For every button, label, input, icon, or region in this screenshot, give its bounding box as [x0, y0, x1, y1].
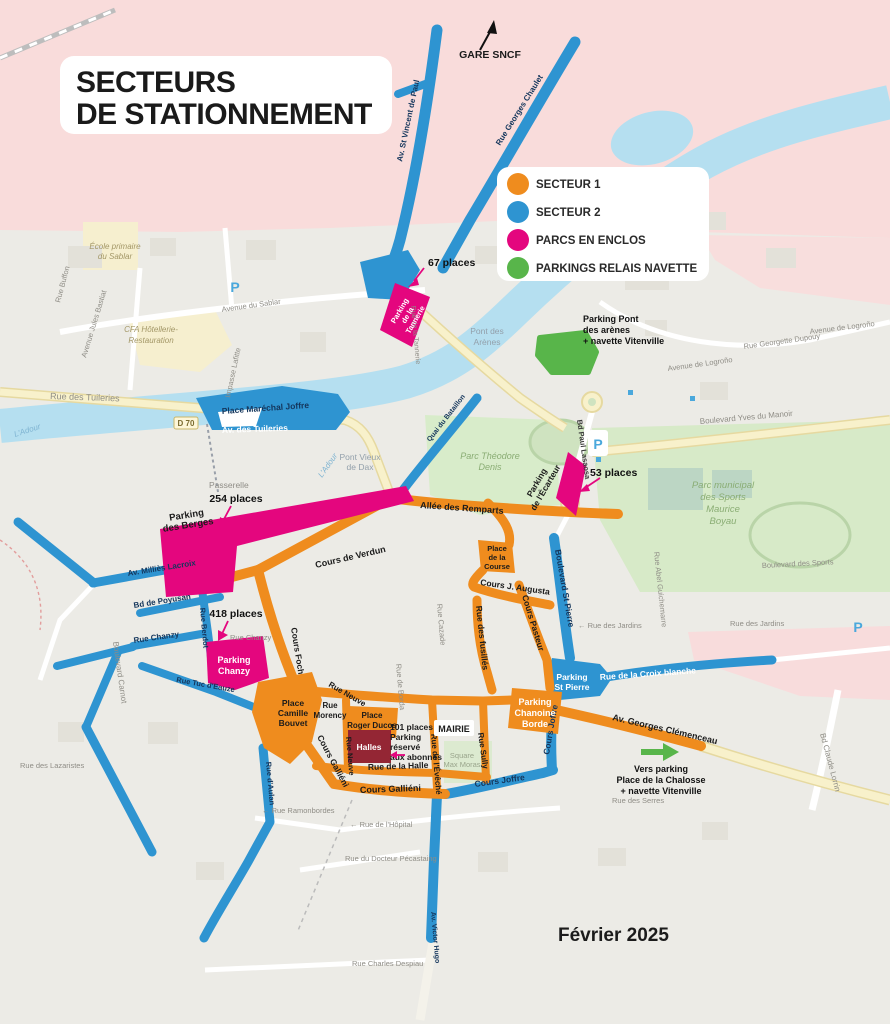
legend: SECTEUR 1 SECTEUR 2 PARCS EN ENCLOS PARK…	[497, 167, 709, 281]
place-camille-label-3: Bouvet	[279, 718, 308, 728]
halles-label: Halles	[356, 742, 381, 752]
gare-sncf-label: GARE SNCF	[459, 49, 521, 61]
road-south-mairie	[437, 773, 487, 777]
legend-secteur2-label: SECTEUR 2	[536, 207, 601, 219]
street-label: Rue des Lazaristes	[20, 761, 84, 770]
street-label: Rue du Docteur Pécastaing	[345, 854, 437, 863]
school-label-2: du Sablar	[98, 252, 133, 261]
dax-parking-map: P P P Rue des Tuileries Passerelle Pont …	[0, 0, 890, 1024]
pont-vieux-label-2: de Dax	[347, 462, 375, 472]
rue-morency-label-2: Morency	[314, 711, 347, 720]
title-block: SECTEURS DE STATIONNEMENT	[60, 56, 392, 134]
date-label: Février 2025	[558, 925, 669, 946]
legend-secteur2-icon	[507, 201, 529, 223]
building	[598, 848, 626, 866]
building	[150, 238, 176, 256]
places-67-label: 67 places	[428, 257, 475, 269]
transit-stop-icon	[628, 390, 633, 395]
legend-secteur1-label: SECTEUR 1	[536, 179, 601, 191]
parking-pont-arenes-label-2: des arènes	[583, 325, 630, 335]
place-camille-label-2: Camille	[278, 708, 309, 718]
transit-stop-icon	[596, 457, 601, 462]
page-title-line1: SECTEURS	[76, 66, 235, 99]
street-label: ← Rue des Jardins	[578, 621, 642, 630]
parking-st-pierre-label-2: St Pierre	[555, 682, 590, 692]
parking-p-icon: P	[593, 436, 602, 452]
building	[196, 862, 224, 880]
road-conn-chanoine	[483, 700, 512, 701]
cfa-label-2: Restauration	[128, 336, 174, 345]
building	[702, 822, 728, 840]
street-label: Rue des Serres	[612, 796, 664, 805]
parking-chanoine-label-3: Borde	[522, 719, 548, 729]
map-canvas: P P P Rue des Tuileries Passerelle Pont …	[0, 0, 890, 1024]
place-roger-label: Place	[362, 711, 383, 720]
parking-chanzy-label: Parking	[217, 655, 250, 665]
building	[475, 246, 499, 264]
building	[246, 240, 276, 260]
place-camille-label: Place	[282, 698, 304, 708]
place-course-label: Place	[487, 544, 507, 553]
abonnes-label-3: réservé	[390, 742, 421, 752]
place-course-label-3: Course	[484, 562, 510, 571]
chalosse-label-3: + navette Vitenville	[620, 786, 701, 796]
pont-arenes-label: Pont des	[470, 326, 504, 336]
chalosse-label: Vers parking	[634, 764, 688, 774]
cfa-label: CFA Hôtellerie-	[124, 325, 178, 334]
building	[58, 722, 84, 742]
street-label: Rue Chanzy	[230, 633, 272, 642]
parking-p-icon: P	[853, 619, 862, 635]
street-label: ← Rue Ramonbordes	[262, 806, 335, 815]
parking-pont-arenes-label-3: + navette Vitenville	[583, 336, 664, 346]
page-title-line2: DE STATIONNEMENT	[76, 98, 372, 131]
transit-stop-icon	[690, 396, 695, 401]
street-label: Rue Charles Despiau	[352, 959, 423, 968]
street-label: ← Rue de l'Hôpital	[350, 820, 413, 829]
street-label: Cours Galliéni	[360, 783, 421, 795]
parc-sports-label: Parc municipal	[692, 480, 755, 491]
parking-chanoine-label-2: Chanoine	[514, 708, 555, 718]
places-254-label: 254 places	[209, 493, 262, 505]
places-53-label: 53 places	[590, 467, 637, 479]
d70-label: D 70	[178, 419, 195, 428]
building	[148, 722, 178, 744]
legend-secteur1-icon	[507, 173, 529, 195]
legend-parcs-label: PARCS EN ENCLOS	[536, 235, 646, 247]
abonnes-label: 101 places	[390, 722, 433, 732]
pont-vieux-label: Pont Vieux	[340, 452, 382, 462]
parking-chanzy-label-2: Chanzy	[218, 666, 250, 676]
parking-chanoine-label: Parking	[518, 697, 551, 707]
abonnes-label-2: Parking	[390, 732, 421, 742]
school-label: École primaire	[89, 242, 141, 251]
mairie-label: MAIRIE	[438, 724, 470, 734]
passerelle-label: Passerelle	[209, 480, 249, 490]
square-label: Square	[450, 751, 474, 760]
parc-theodore-label-2: Denis	[478, 462, 502, 472]
parc-sports-label-4: Boyau	[710, 516, 738, 527]
abonnes-label-4: aux abonnés	[390, 752, 442, 762]
places-418-label: 418 places	[209, 608, 262, 620]
building	[766, 248, 796, 268]
legend-relais-label: PARKINGS RELAIS NAVETTE	[536, 263, 698, 275]
building	[300, 332, 326, 352]
roundabout-center	[588, 398, 596, 406]
pont-arenes-label-2: Arènes	[474, 337, 501, 347]
place-course-label-2: de la	[488, 553, 506, 562]
building	[478, 852, 508, 872]
parking-st-pierre-label: Parking	[556, 672, 587, 682]
parking-pont-arenes-label: Parking Pont	[583, 314, 639, 324]
parc-theodore-label: Parc Théodore	[460, 451, 520, 461]
chalosse-label-2: Place de la Chalosse	[616, 775, 705, 785]
parc-sports-label-3: Maurice	[706, 504, 740, 515]
rue-morency-label: Rue	[322, 701, 338, 710]
street-label: Rue des Jardins	[730, 619, 784, 628]
legend-parcs-icon	[507, 229, 529, 251]
parking-p-icon: P	[230, 279, 239, 295]
square-label-2: Max Moras	[443, 760, 480, 769]
parc-sports-label-2: des Sports	[700, 492, 746, 503]
building	[700, 382, 728, 400]
legend-relais-icon	[507, 257, 529, 279]
